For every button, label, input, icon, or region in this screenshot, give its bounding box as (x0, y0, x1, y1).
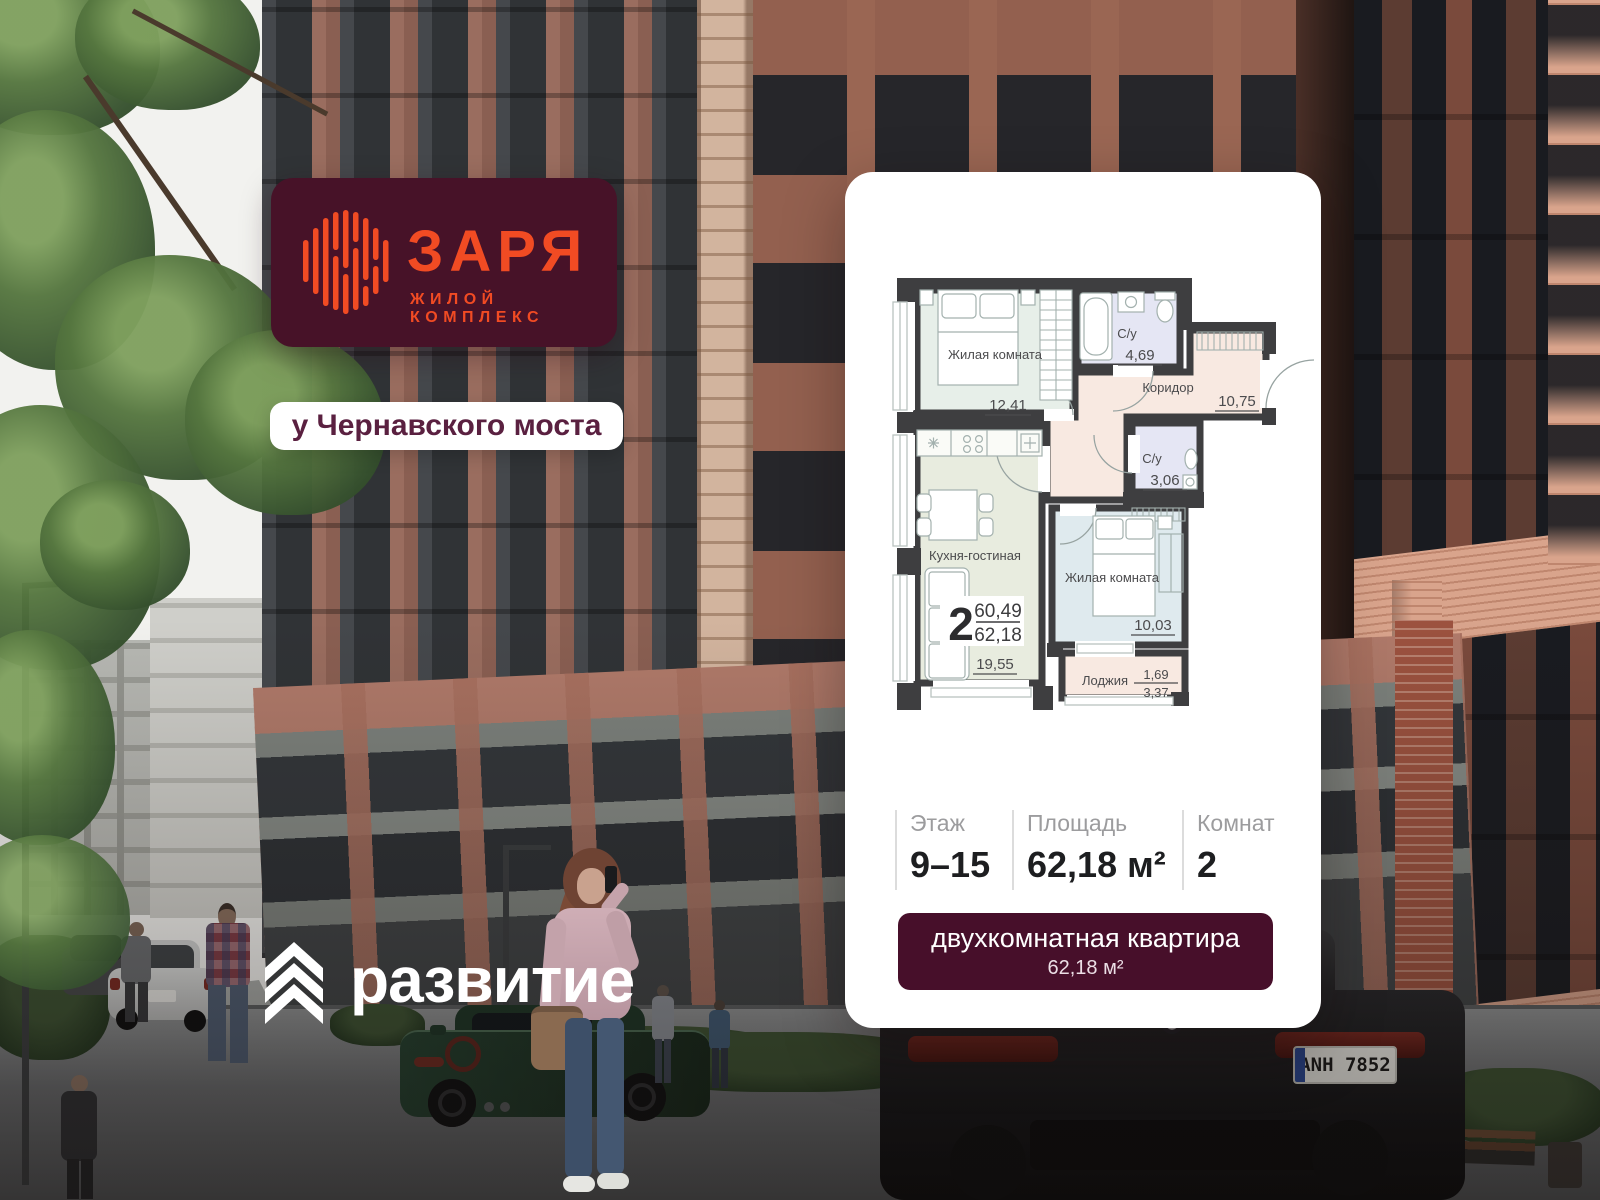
right-building-brick-edge (1548, 0, 1600, 565)
unit-rooms-count: 2 (948, 598, 974, 650)
distant-building-2 (150, 598, 268, 918)
room-area: 1,69 (1143, 667, 1168, 682)
pedestrian (55, 1075, 105, 1200)
license-plate-text: ANH 7852 (1299, 1054, 1391, 1076)
stat-label: Этаж (910, 810, 1020, 837)
room-area: 3,06 (1150, 472, 1179, 489)
stat-label: Площадь (1027, 810, 1190, 837)
apartment-card[interactable]: 2 60,49 62,18 Жилая комната 12,41 С/у 4,… (845, 172, 1321, 1028)
room-label: С/у (1117, 326, 1137, 341)
location-badge: у Чернавского моста (270, 402, 623, 450)
sunrise-bars-icon (299, 210, 391, 314)
stat-floor: Этаж 9–15 (895, 810, 1020, 890)
room-label: Коридор (1142, 380, 1193, 395)
stat-value: 62,18 м² (1027, 844, 1190, 886)
trash-bin (1548, 1142, 1582, 1188)
room-area: 10,03 (1134, 617, 1172, 634)
floor-plan: 2 60,49 62,18 Жилая комната 12,41 С/у 4,… (887, 270, 1317, 719)
stat-value: 9–15 (910, 844, 1020, 886)
room-label: Кухня-гостиная (929, 548, 1021, 563)
pedestrian-plaid (196, 903, 260, 1065)
room-label: Жилая комната (1065, 570, 1160, 585)
room-area: 19,55 (976, 656, 1014, 673)
room-area: 10,75 (1218, 393, 1256, 410)
room-area: 12,41 (989, 397, 1027, 414)
developer-logo: развитие (262, 934, 634, 1026)
unit-living-area: 60,49 (974, 601, 1022, 622)
tree-foliage (40, 480, 190, 610)
unit-total-area: 62,18 (974, 625, 1022, 646)
brand-logo-panel: ЗАРЯ ЖИЛОЙ КОМПЛЕКС (271, 178, 617, 347)
stat-area: Площадь 62,18 м² (1012, 810, 1190, 890)
room-label: Лоджия (1082, 673, 1128, 688)
distant-pedestrian (706, 1000, 734, 1088)
page: ANH 7852 (0, 0, 1600, 1200)
room-label: С/у (1142, 451, 1162, 466)
stat-rooms: Комнат 2 (1182, 810, 1297, 890)
apartment-type-text: двухкомнатная квартира (931, 923, 1240, 954)
location-badge-text: у Чернавского моста (292, 409, 602, 443)
license-plate: ANH 7852 (1293, 1046, 1397, 1084)
room-area-total: 3,37 (1143, 685, 1168, 700)
stat-label: Комнат (1197, 810, 1297, 837)
chevrons-icon (262, 934, 326, 1026)
room-label: Жилая комната (948, 347, 1043, 362)
developer-name: развитие (350, 943, 634, 1017)
room-area: 4,69 (1125, 347, 1154, 364)
brand-name: ЗАРЯ (407, 218, 588, 285)
stat-value: 2 (1197, 844, 1297, 886)
apartment-type-badge: двухкомнатная квартира 62,18 м² (898, 913, 1273, 990)
brand-tagline: ЖИЛОЙ КОМПЛЕКС (410, 291, 617, 327)
apartment-area-text: 62,18 м² (1047, 957, 1123, 980)
distant-pedestrian (648, 985, 678, 1085)
